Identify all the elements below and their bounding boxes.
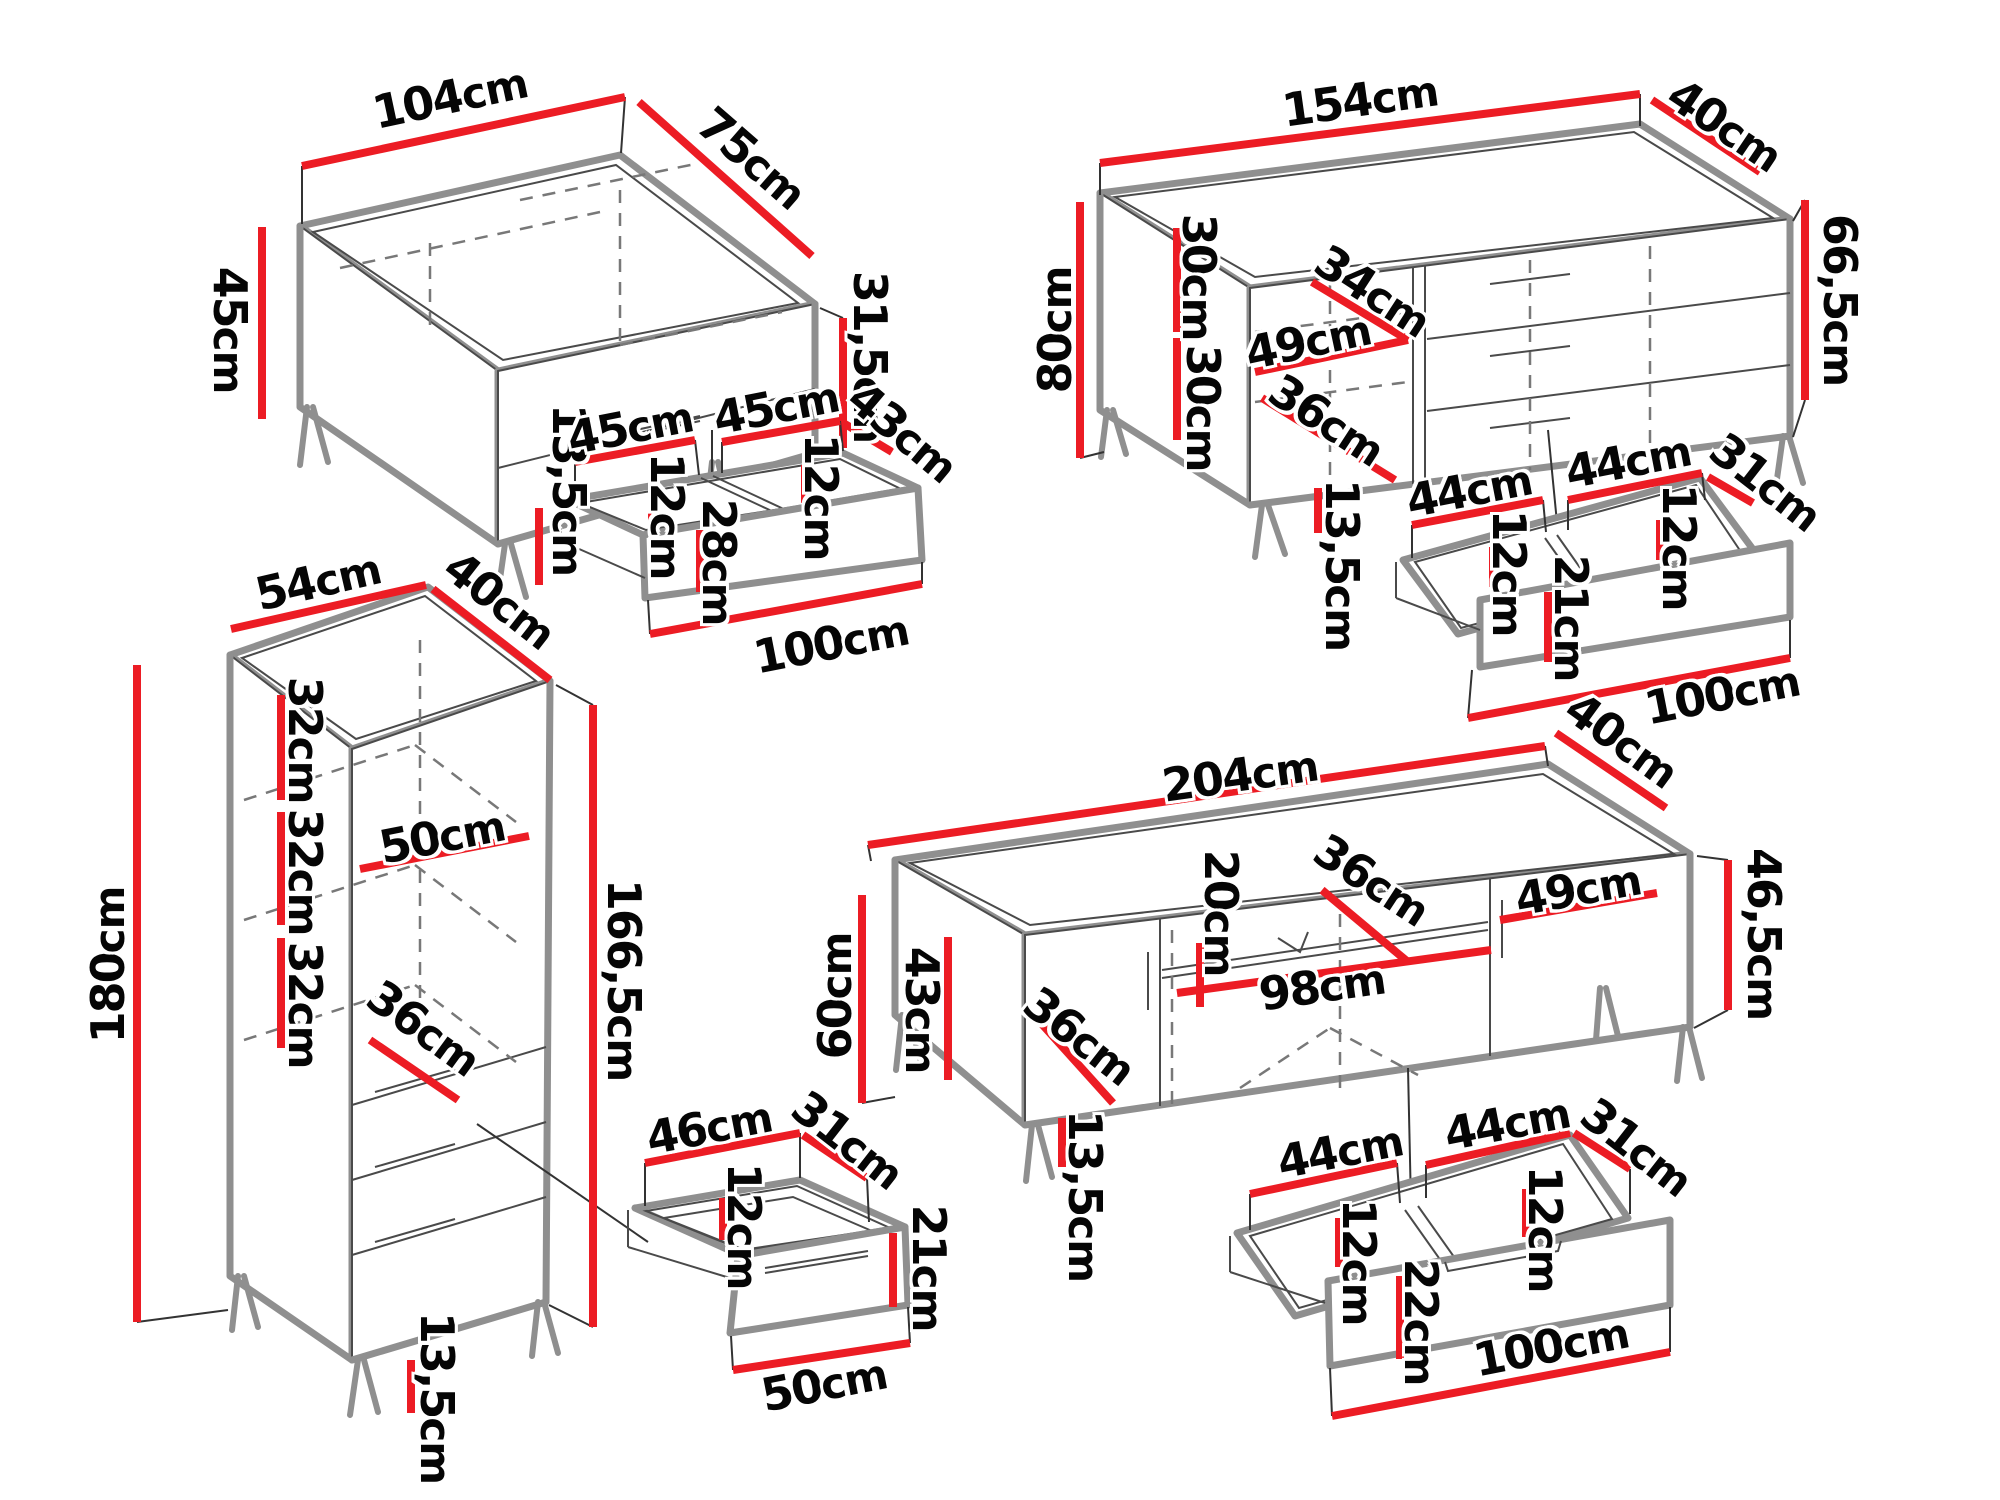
dim-label-tdrawer-28: 28cm xyxy=(696,499,742,626)
dim-label-sideboard-height: 80cm xyxy=(1032,267,1078,394)
dim-label-tvdrawer-12b: 12cm xyxy=(1522,1166,1568,1293)
dim-label-sideboard-shelf-30b: 30cm xyxy=(1180,345,1226,472)
dim-label-cabinet-height: 180cm xyxy=(85,887,131,1044)
dim-label-tvdrawer-22: 22cm xyxy=(1398,1259,1444,1386)
dim-label-tdrawer-12a: 12cm xyxy=(644,453,690,580)
dim-label-sdrawer-12b: 12cm xyxy=(1656,484,1702,611)
dim-label-table-height: 45cm xyxy=(207,267,253,394)
dim-label-tv-20: 20cm xyxy=(1198,850,1244,977)
dim-label-cdrawer-12: 12cm xyxy=(721,1163,767,1290)
dim-label-sdrawer-21: 21cm xyxy=(1548,555,1594,682)
diagram-canvas: 104cm 75cm 45cm 31,5cm 13,5cm 45cm 45cm … xyxy=(0,0,2000,1500)
dim-label-tv-leg-height: 13,5cm xyxy=(1062,1110,1108,1282)
dim-label-cabinet-shelf-32a: 32cm xyxy=(282,677,328,804)
dim-label-tdrawer-12b: 12cm xyxy=(798,434,844,561)
dim-label-cabinet-body-height: 166,5cm xyxy=(601,879,647,1081)
dim-label-tv-height: 60cm xyxy=(812,933,858,1060)
dim-label-sideboard-leg-height: 13,5cm xyxy=(1319,479,1365,651)
dim-label-sideboard-shelf-30a: 30cm xyxy=(1176,214,1222,341)
dim-label-cabinet-shelf-32b: 32cm xyxy=(282,809,328,936)
dim-label-cdrawer-21: 21cm xyxy=(906,1205,952,1332)
dim-label-tvdrawer-12a: 12cm xyxy=(1336,1199,1382,1326)
dim-label-tv-body-height: 46,5cm xyxy=(1741,848,1787,1020)
dim-label-tv-43: 43cm xyxy=(899,947,945,1074)
dim-label-sideboard-body-height: 66,5cm xyxy=(1817,214,1863,386)
dim-label-cabinet-leg-height: 13,5cm xyxy=(414,1312,460,1484)
dim-label-sdrawer-12a: 12cm xyxy=(1486,510,1532,637)
dim-label-cabinet-shelf-32c: 32cm xyxy=(282,942,328,1069)
